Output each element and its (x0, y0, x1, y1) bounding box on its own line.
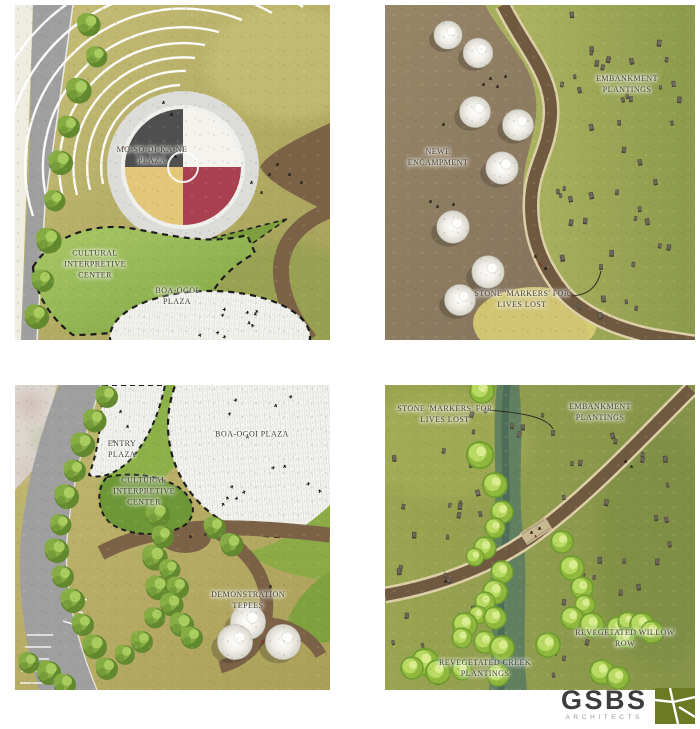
panel-encampment-plan (385, 5, 695, 340)
landscape-plan-sheet: MO-SO-DI-KA-NE PLAZA CULTURAL INTERPRETI… (0, 0, 700, 729)
medicine-wheel-plaza (107, 91, 259, 243)
entry-plan-illustration (15, 385, 330, 690)
panel-creek-plan (385, 385, 695, 690)
encampment-illustration (385, 5, 695, 340)
gsbs-architects-logo: GSBS ARCHITECTS (561, 687, 695, 724)
panel-entry-plan (15, 385, 330, 690)
logo-wordmark: GSBS (561, 687, 648, 713)
field-pattern-square-icon (655, 688, 695, 724)
plaza-concept-illustration (15, 5, 330, 340)
logo-subtitle: ARCHITECTS (566, 714, 644, 721)
creek-plan-illustration (385, 385, 695, 690)
panel-plaza-concept-plan (15, 5, 330, 340)
